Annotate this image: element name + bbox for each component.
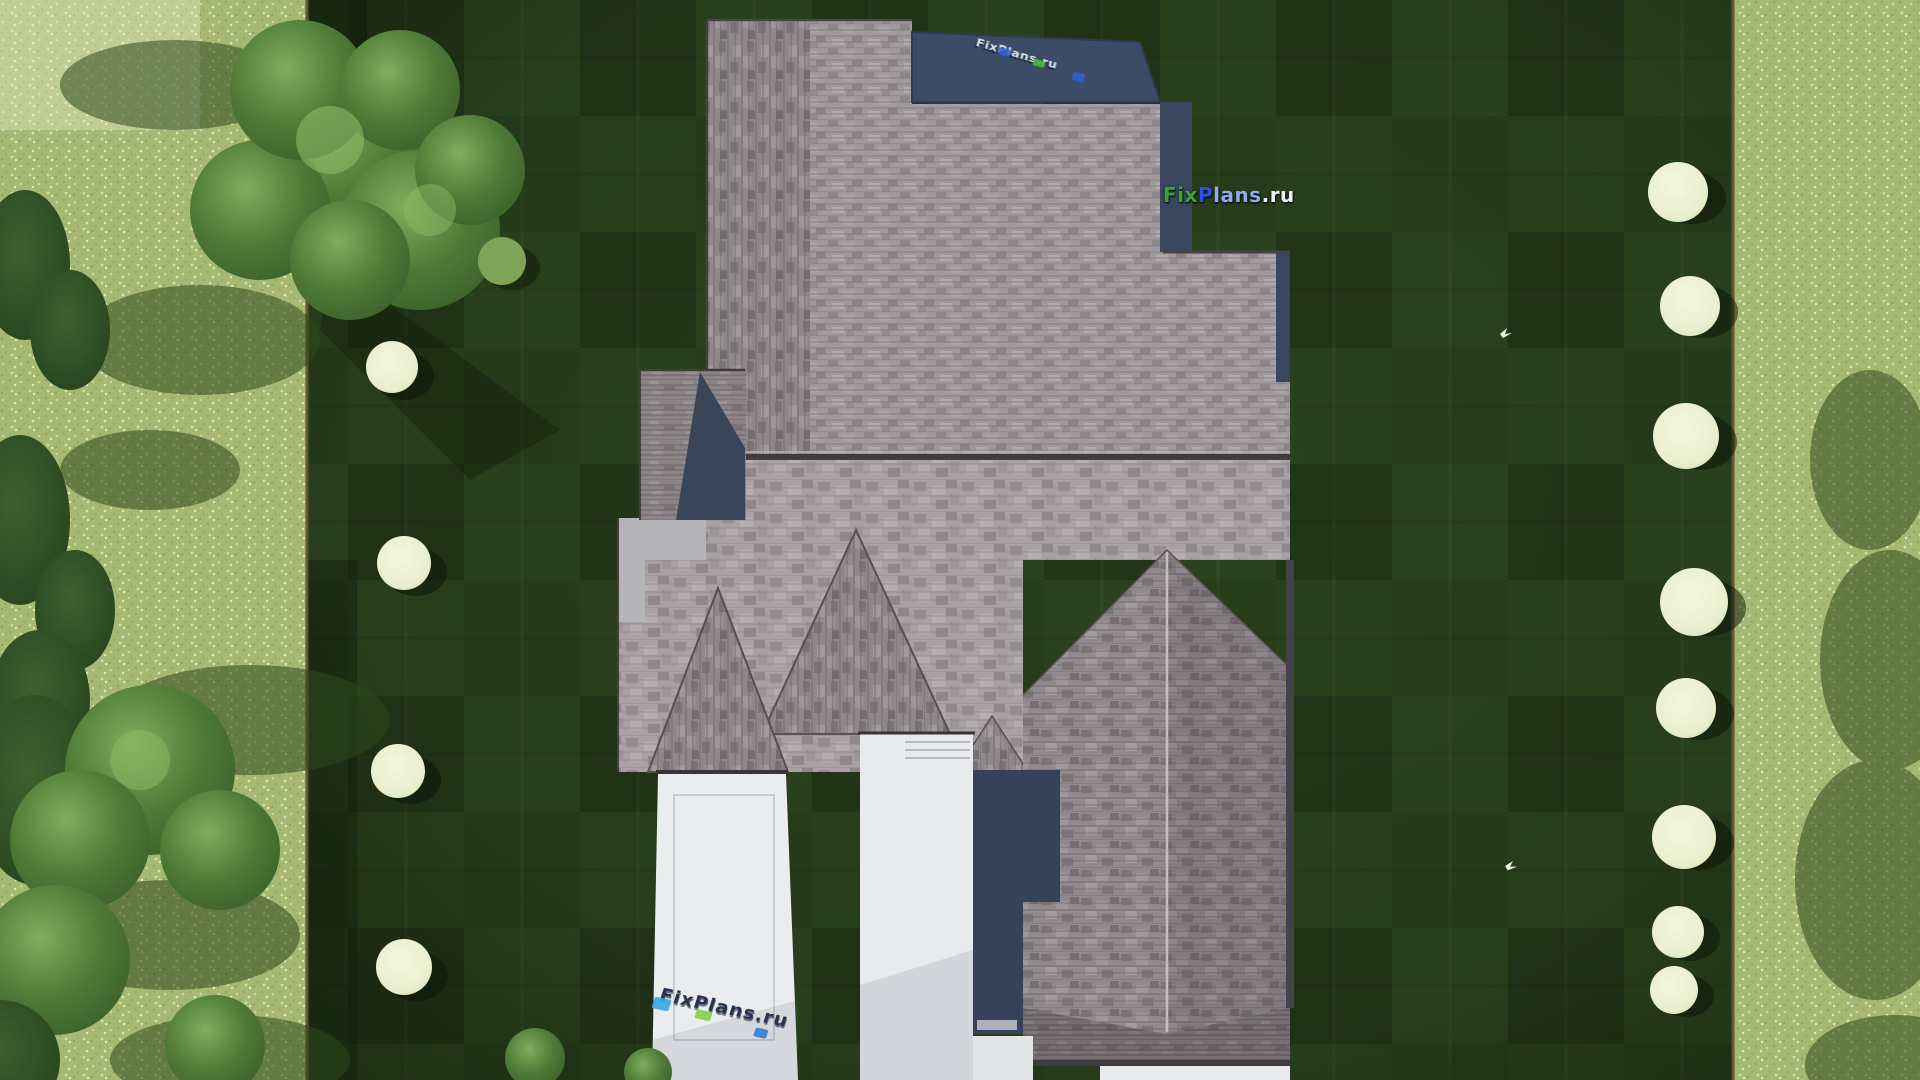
flat-roof-navy — [912, 32, 1160, 102]
bottom-walk-sliver — [1100, 1066, 1290, 1080]
east-wall-shadow — [1160, 102, 1192, 252]
logo-p: P — [1198, 183, 1213, 207]
extension-edge-shadow — [1276, 252, 1290, 382]
bottom-eave — [1023, 1060, 1290, 1066]
tree-shadow-on-lawn — [307, 560, 357, 1080]
lower-roof-south-slope — [700, 460, 1290, 560]
render-canvas — [0, 0, 1920, 1080]
logo-ru: .ru — [1262, 183, 1295, 207]
logo-fix: Fix — [1163, 183, 1198, 207]
aerial-house-render: FixPlans.ru FixPlans.ru FixPlans.ru — [0, 0, 1920, 1080]
watermark-logo: FixPlans.ru — [1163, 183, 1295, 207]
upper-roof-east-extension — [1163, 252, 1290, 458]
bottom-apron — [973, 1036, 1033, 1080]
courtyard-wall-highlight — [977, 1020, 1017, 1030]
right-eave-strip — [1286, 560, 1294, 1008]
logo-lans: lans — [1213, 183, 1262, 207]
lower-roof-left — [645, 560, 973, 622]
